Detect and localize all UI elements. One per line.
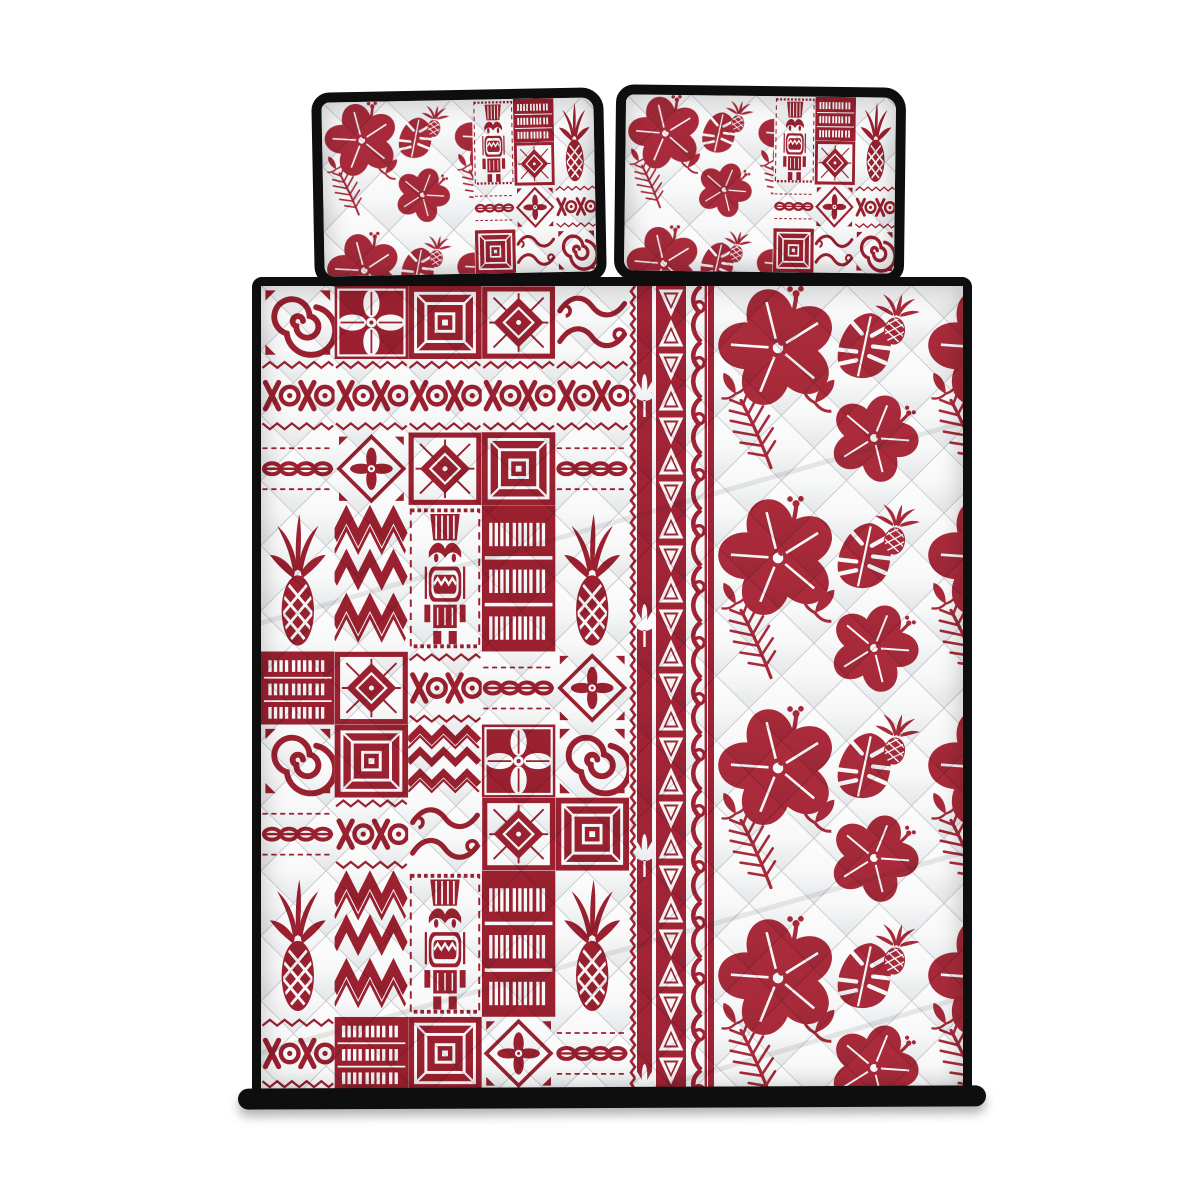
pillow-left-tapa-half — [472, 97, 597, 273]
patch-star — [335, 651, 409, 724]
hibiscus-pattern-fill — [714, 286, 963, 1090]
patch-tiki — [408, 871, 482, 1017]
stripe-wave-band — [686, 286, 708, 1090]
stripe-triangle-band — [656, 286, 686, 1090]
pillow-sham-right — [614, 84, 906, 284]
pillow-right-tapa-half — [772, 96, 896, 273]
patch-leaf4 — [482, 725, 556, 798]
patch-leaf4 — [335, 286, 409, 359]
quilt-bottom-binding — [238, 1085, 986, 1109]
patch-pineapple — [261, 505, 335, 657]
pillow-sham-left — [311, 87, 607, 287]
stripe-red-leaf — [637, 286, 652, 1090]
patch-xoxo — [554, 184, 595, 228]
patch-hash — [335, 1017, 409, 1090]
patch-waves — [813, 229, 854, 273]
patch-xoxo — [335, 798, 409, 871]
patch-pineapple — [261, 871, 335, 1023]
patch-chain — [555, 432, 629, 505]
patch-chevron — [408, 725, 482, 798]
patch-star — [482, 798, 556, 871]
patch-xoxo — [261, 359, 335, 432]
patch-waves — [408, 798, 482, 871]
quilt-left-tapa-patchwork-panel — [261, 286, 629, 1090]
patch-spiral — [555, 228, 596, 272]
patch-chevron — [335, 871, 409, 1017]
bedding-product-photo — [0, 0, 1200, 1200]
pillow-right-fabric — [624, 94, 896, 273]
patch-waves — [555, 286, 629, 359]
patch-geo — [335, 725, 409, 798]
patch-hash — [512, 98, 553, 142]
patch-geo — [772, 228, 813, 272]
patch-geo — [474, 229, 515, 273]
patch-pineapple — [854, 97, 896, 189]
hibiscus-pattern-fill — [624, 94, 775, 272]
pillow-right-hibiscus-half — [624, 94, 775, 272]
patch-xoxo — [555, 359, 629, 432]
patch-spiral — [555, 725, 629, 798]
patch-xoxo — [854, 185, 895, 229]
patch-star — [482, 286, 556, 359]
patch-tiki — [472, 99, 514, 187]
patch-chain — [473, 186, 514, 230]
patch-chain — [773, 184, 814, 228]
patch-geo — [555, 798, 629, 871]
patch-tiki — [408, 505, 482, 651]
patch-chain — [555, 1017, 629, 1090]
patch-chain — [261, 798, 335, 871]
patch-xoxo — [335, 359, 409, 432]
patch-flower — [555, 651, 629, 724]
patch-chain — [261, 432, 335, 505]
pillow-left-hibiscus-half — [321, 100, 475, 277]
patch-waves — [515, 229, 556, 273]
quilt-right-hibiscus-panel — [714, 286, 963, 1090]
patch-geo — [408, 286, 482, 359]
patch-flower — [514, 185, 555, 229]
stripe-zigzag-trim — [629, 286, 637, 1090]
quilt-fabric — [261, 286, 963, 1090]
patch-spiral — [261, 725, 335, 798]
patch-star — [814, 141, 855, 185]
patch-star — [408, 432, 482, 505]
hibiscus-pattern-fill — [321, 100, 475, 277]
patch-flower — [335, 432, 409, 505]
patch-hash — [815, 97, 856, 141]
patch-star — [513, 142, 554, 186]
patch-geo — [482, 432, 556, 505]
patch-chevron — [335, 505, 409, 651]
patch-hash — [261, 651, 335, 724]
patch-flower — [813, 185, 854, 229]
pillow-left-fabric — [321, 97, 596, 276]
patch-spiral — [261, 286, 335, 359]
patch-flower — [482, 1017, 556, 1090]
patch-chain — [482, 651, 556, 724]
quilt — [252, 277, 972, 1099]
patch-hash — [482, 871, 556, 1017]
patch-pineapple — [553, 97, 595, 188]
patch-geo — [408, 1017, 482, 1090]
patch-spiral — [853, 229, 894, 273]
patch-xoxo — [261, 1017, 335, 1090]
patch-xoxo — [482, 359, 556, 432]
patch-pineapple — [555, 505, 629, 657]
quilt-center-tribal-border-band — [629, 286, 714, 1090]
patch-xoxo — [408, 359, 482, 432]
patch-hash — [482, 505, 556, 651]
patch-tiki — [773, 96, 815, 184]
patch-xoxo — [408, 651, 482, 724]
patch-pineapple — [555, 871, 629, 1023]
